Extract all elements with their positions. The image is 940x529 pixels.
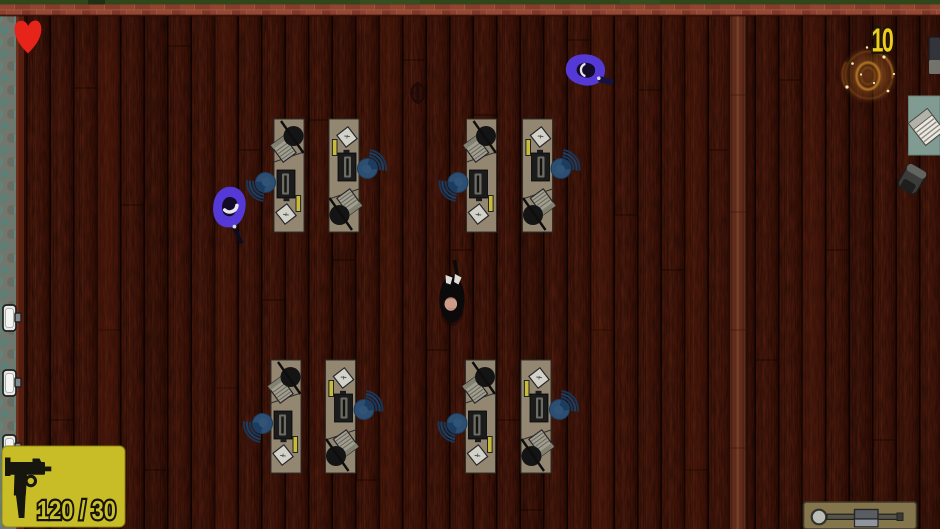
svg-text:120 / 30: 120 / 30 xyxy=(37,496,116,525)
svg-text:10: 10 xyxy=(872,22,894,59)
